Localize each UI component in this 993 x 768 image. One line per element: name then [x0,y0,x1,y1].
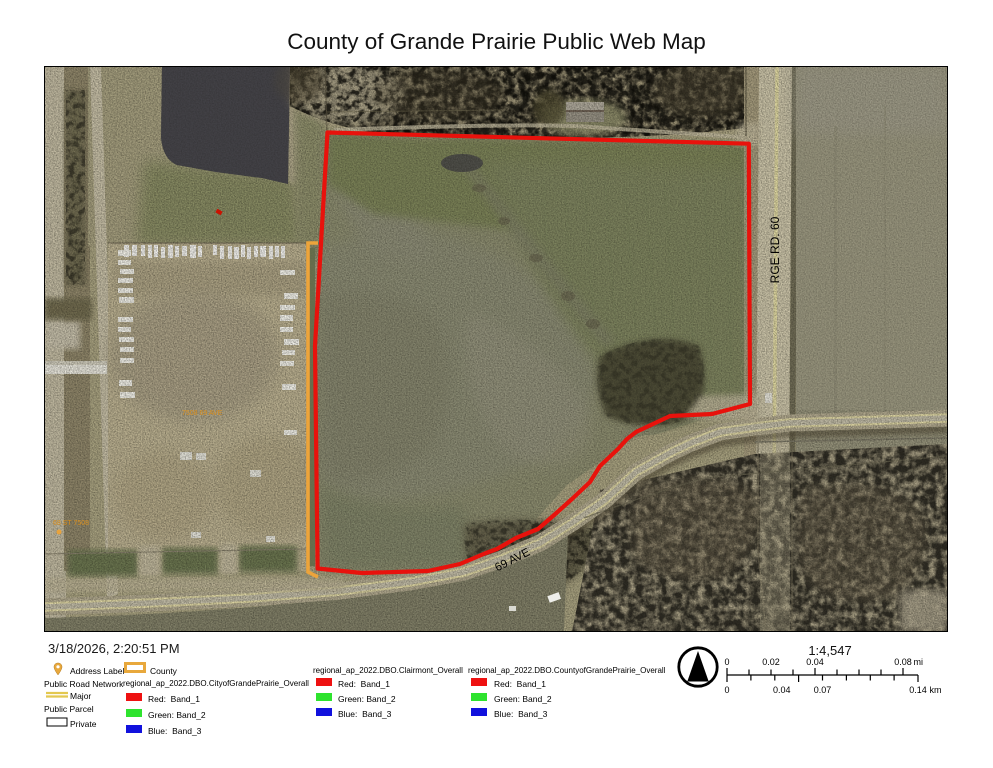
svg-text:km: km [927,685,942,695]
svg-text:0.02: 0.02 [762,657,780,667]
svg-text:mi: mi [911,657,923,667]
svg-text:68 ST 7508: 68 ST 7508 [53,520,89,527]
svg-text:0.14: 0.14 [909,685,927,695]
svg-text:0.04: 0.04 [773,685,791,695]
svg-text:0.08: 0.08 [894,657,912,667]
svg-text:0: 0 [724,685,729,695]
svg-text:0: 0 [724,657,729,667]
svg-text:7508 69 AVE: 7508 69 AVE [182,410,223,417]
svg-text:RGE RD. 60: RGE RD. 60 [768,216,782,283]
svg-text:0.04: 0.04 [806,657,824,667]
svg-text:0.07: 0.07 [814,685,832,695]
